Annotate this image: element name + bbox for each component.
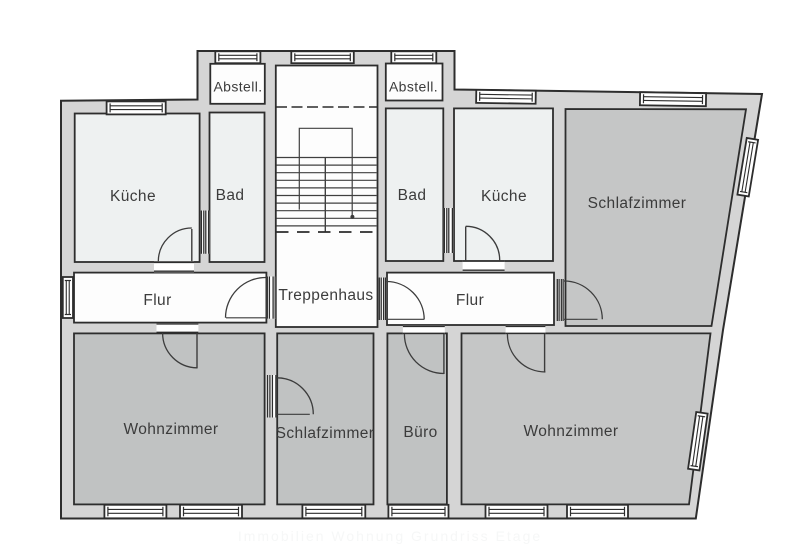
svg-text:Bad: Bad: [398, 187, 427, 204]
svg-text:Flur: Flur: [143, 292, 171, 309]
svg-text:Schlafzimmer: Schlafzimmer: [276, 425, 375, 442]
svg-text:Küche: Küche: [481, 188, 527, 205]
svg-text:Küche: Küche: [110, 188, 156, 205]
svg-text:Schlafzimmer: Schlafzimmer: [588, 195, 687, 212]
svg-text:Wohnzimmer: Wohnzimmer: [523, 423, 618, 440]
svg-text:Büro: Büro: [403, 424, 437, 441]
svg-text:Bad: Bad: [216, 187, 245, 204]
svg-text:Flur: Flur: [456, 292, 484, 309]
svg-text:Abstell.: Abstell.: [389, 79, 438, 95]
svg-text:Wohnzimmer: Wohnzimmer: [123, 421, 218, 438]
svg-text:Immobilien Wohnung Grundriss: Immobilien Wohnung Grundriss Etage: [238, 528, 542, 544]
svg-text:Treppenhaus: Treppenhaus: [278, 287, 373, 304]
svg-text:Abstell.: Abstell.: [213, 79, 262, 95]
